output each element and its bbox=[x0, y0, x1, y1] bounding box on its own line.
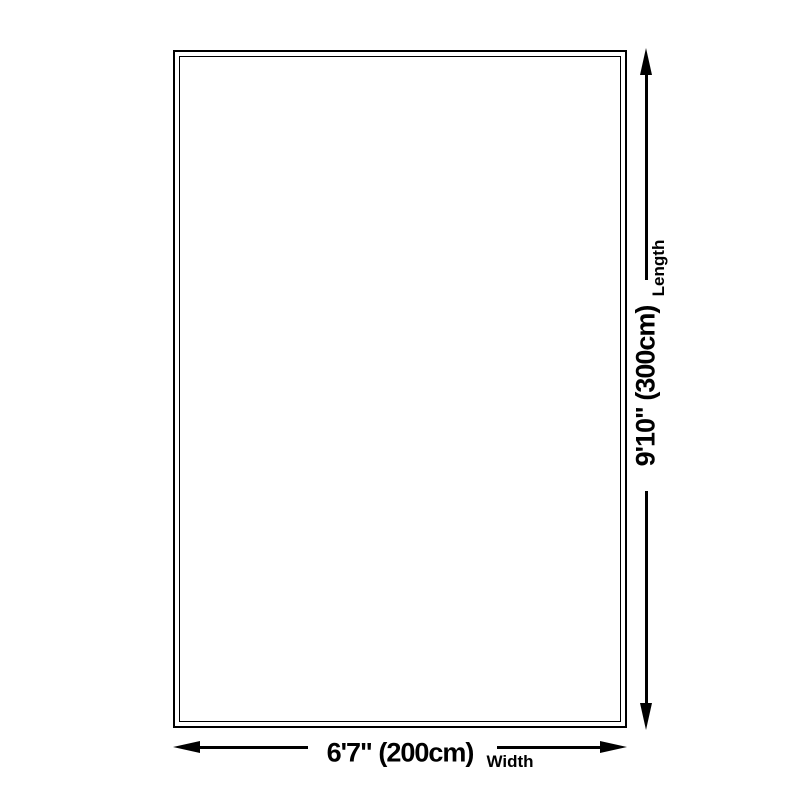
width-arrow-right-icon bbox=[600, 741, 627, 753]
length-value: 9'10" (300cm) bbox=[630, 306, 661, 467]
length-arrow-bottom-icon bbox=[640, 703, 652, 730]
rug-outline-inner-border bbox=[179, 56, 621, 722]
length-dimension-line-top bbox=[645, 71, 648, 280]
width-dimension-line-right bbox=[497, 746, 607, 749]
width-dimension-line-left bbox=[196, 746, 308, 749]
width-value: 6'7" (200cm) bbox=[327, 738, 474, 769]
length-label: Length bbox=[649, 240, 669, 297]
rug-outline bbox=[173, 50, 627, 728]
rug-dimension-diagram: 6'7" (200cm) Width Length 9'10" (300cm) bbox=[0, 0, 800, 800]
length-dimension-line-bottom bbox=[645, 491, 648, 703]
width-label: Width bbox=[486, 752, 533, 772]
